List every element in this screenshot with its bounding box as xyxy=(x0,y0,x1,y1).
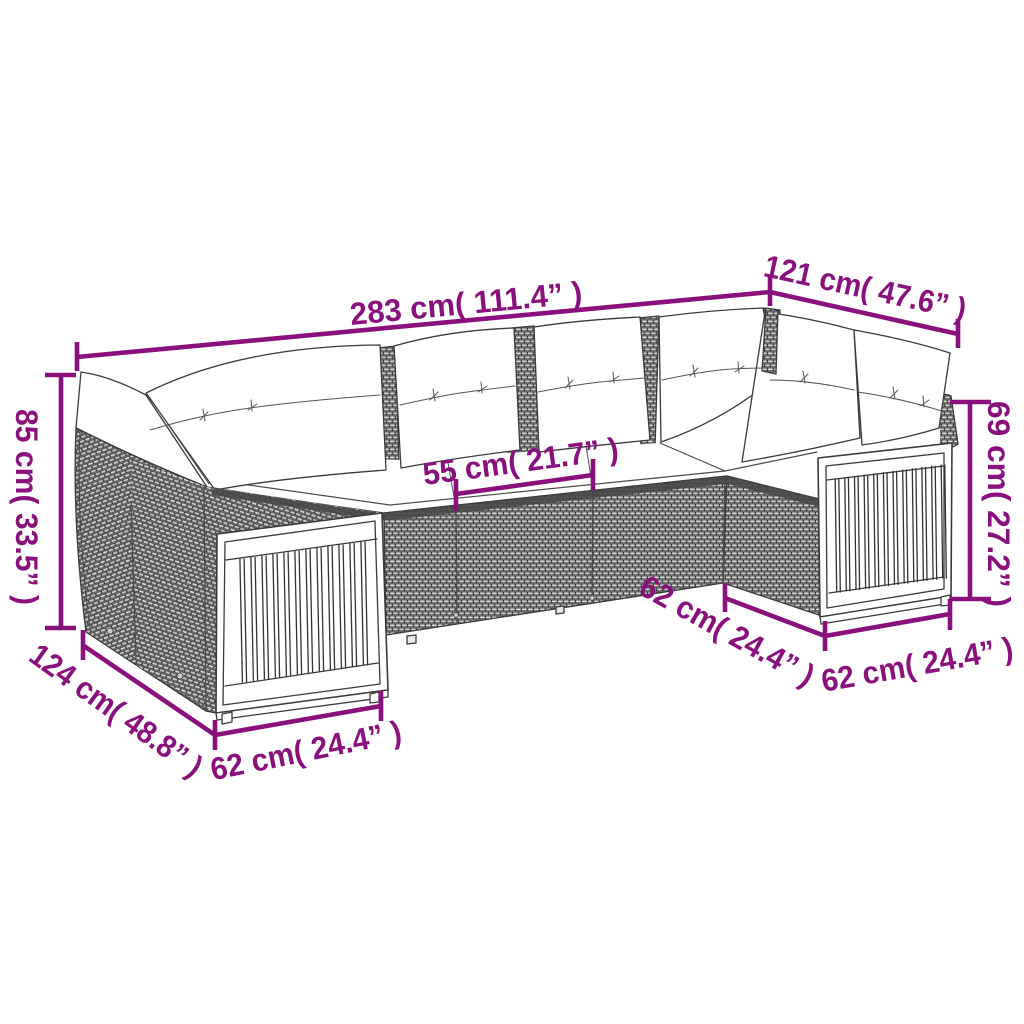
svg-text:85 cm( 33.5” ): 85 cm( 33.5” ) xyxy=(9,409,45,605)
svg-text:69 cm( 27.2” ): 69 cm( 27.2” ) xyxy=(981,401,1017,607)
